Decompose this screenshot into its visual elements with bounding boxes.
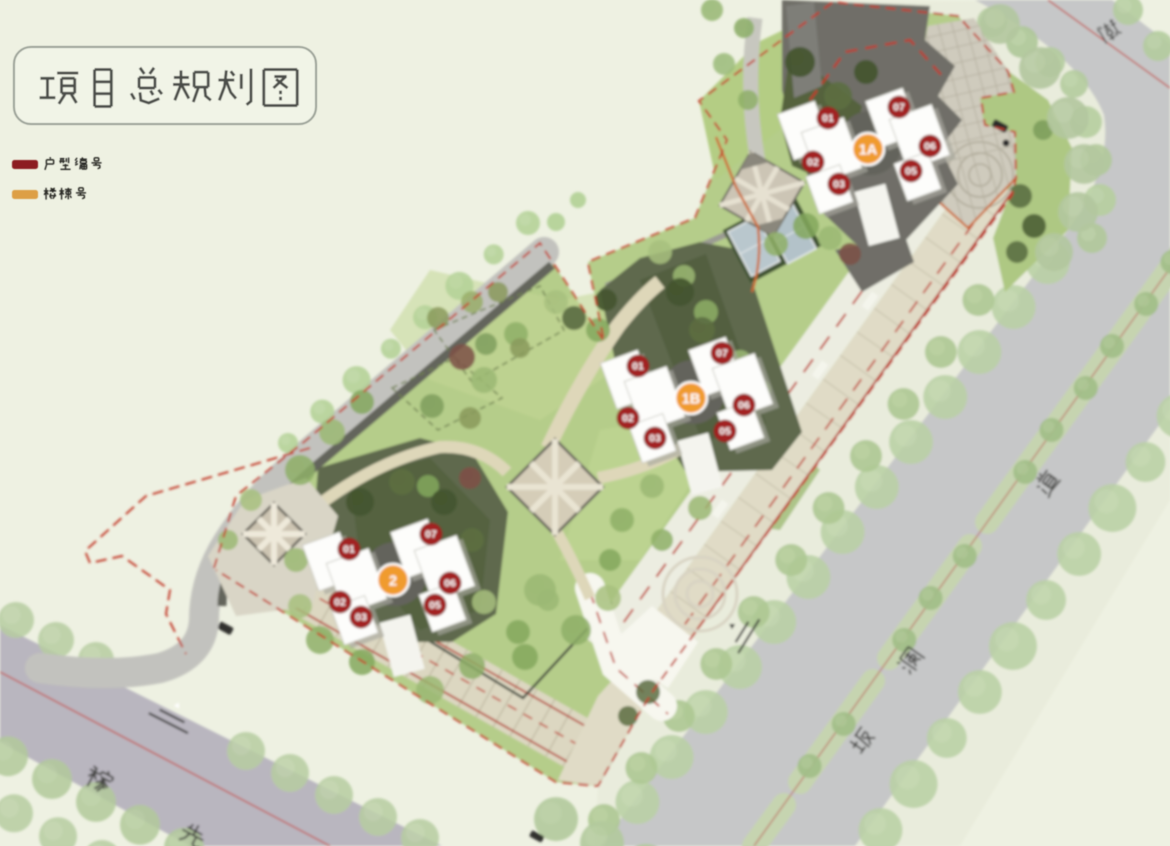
svg-text:03: 03 bbox=[833, 179, 845, 191]
svg-text:02: 02 bbox=[622, 413, 634, 425]
svg-text:01: 01 bbox=[822, 113, 834, 125]
svg-text:03: 03 bbox=[355, 612, 367, 624]
svg-text:07: 07 bbox=[425, 529, 437, 541]
svg-text:02: 02 bbox=[334, 597, 346, 609]
svg-text:2: 2 bbox=[389, 574, 397, 590]
svg-text:05: 05 bbox=[429, 600, 441, 612]
svg-text:01: 01 bbox=[343, 544, 355, 556]
svg-text:’: ’ bbox=[879, 133, 882, 143]
svg-text:’: ’ bbox=[404, 564, 407, 574]
svg-text:06: 06 bbox=[924, 141, 936, 153]
svg-text:07: 07 bbox=[716, 348, 728, 360]
svg-text:06: 06 bbox=[738, 400, 750, 412]
svg-text:’: ’ bbox=[702, 382, 705, 392]
svg-text:05: 05 bbox=[905, 166, 917, 178]
svg-text:07: 07 bbox=[893, 102, 905, 114]
svg-text:05: 05 bbox=[719, 426, 731, 438]
svg-text:1A: 1A bbox=[859, 143, 878, 159]
svg-text:01: 01 bbox=[632, 361, 644, 373]
svg-text:1B: 1B bbox=[682, 392, 701, 408]
svg-text:03: 03 bbox=[649, 433, 661, 445]
svg-text:06: 06 bbox=[444, 578, 456, 590]
svg-text:02: 02 bbox=[807, 157, 819, 169]
